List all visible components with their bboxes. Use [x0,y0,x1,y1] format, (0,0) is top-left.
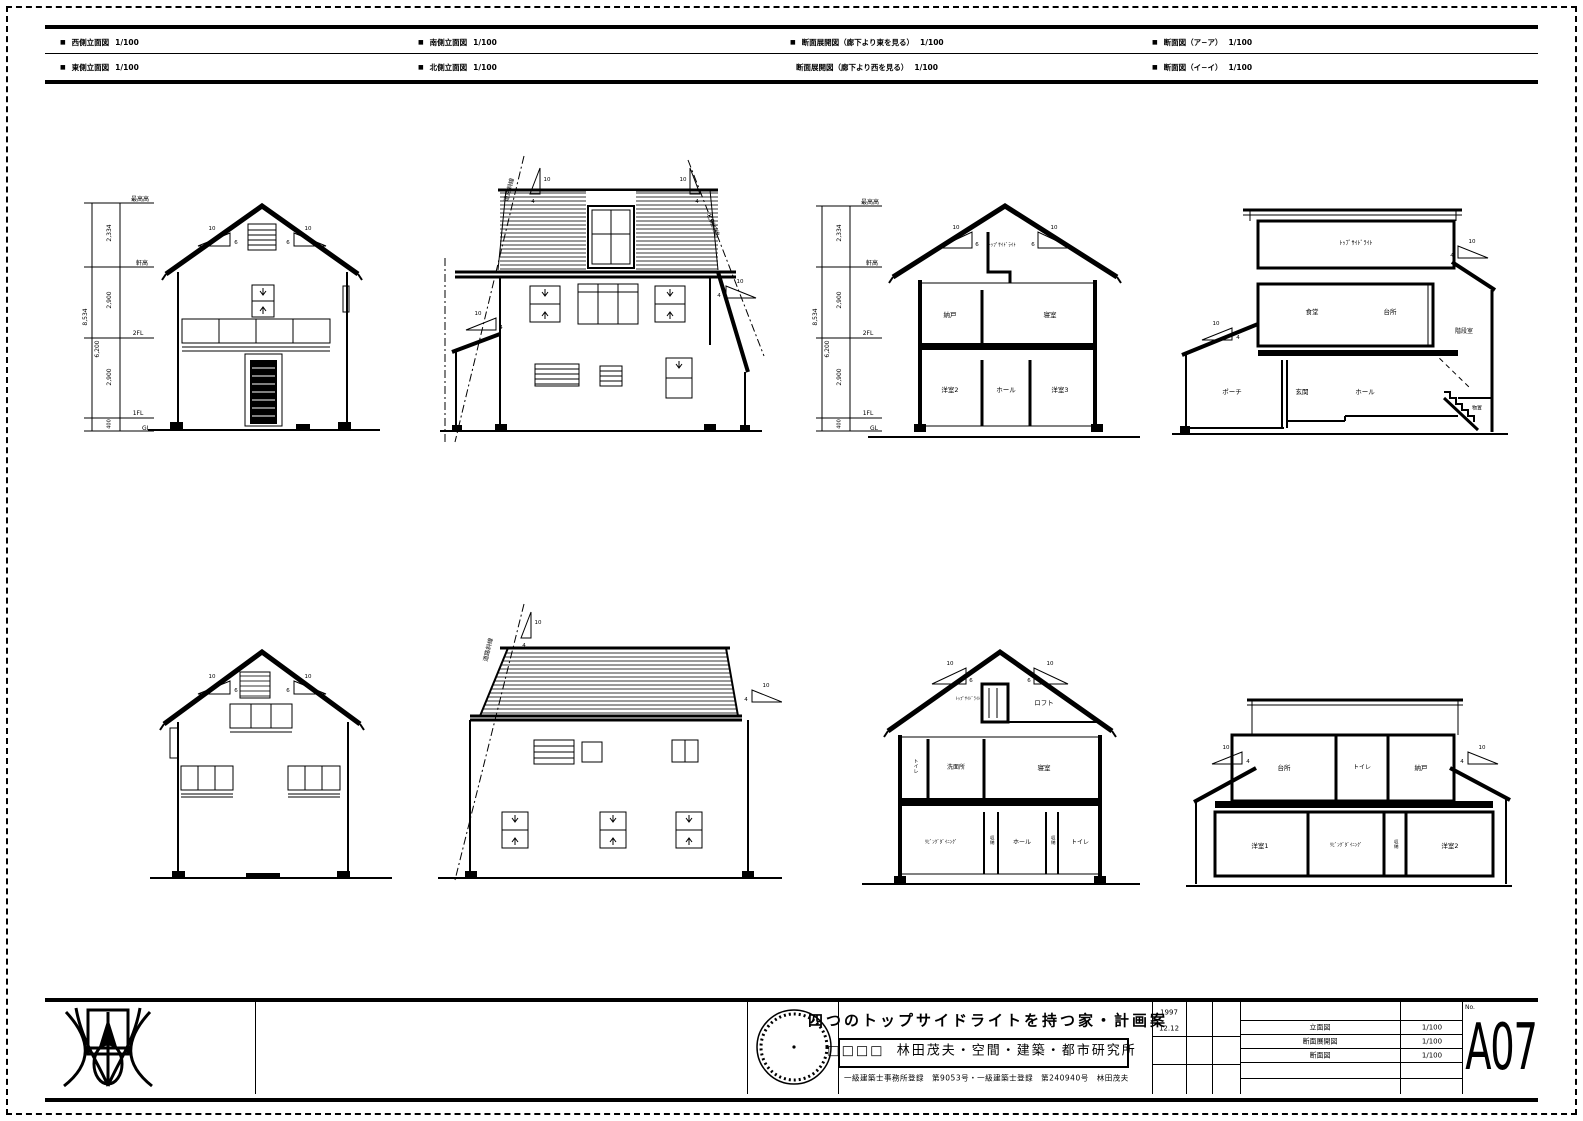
dimension-value: 400 [108,419,113,429]
drawing-scale: 1/100 [115,38,139,47]
dimension-subtotal: 6,200 [95,340,101,357]
room-label: トイレ [913,759,918,774]
slope-rise: 4 [1460,759,1464,765]
drawing-title: 断面図（ア−ア） [1164,37,1223,48]
drawing-title: 西側立面図 [72,37,110,48]
level-label: 1FL [133,411,144,417]
index-drawing-scale: 1/100 [1422,1025,1442,1032]
square-bullet-icon: ■ [418,64,424,71]
slope-run: 10 [1213,321,1220,327]
section-a-a-drawing: 10 6 10 6 [808,195,1144,445]
slope-run: 10 [475,311,482,317]
license-line: 一級建築士事務所登録 第9053号・一級建築士登録 第240940号 林田茂夫 [844,1074,1129,1082]
room-label: 洗面所 [947,765,965,771]
index-table-rule [1240,1078,1462,1079]
drawing-title: 断面展開図（廊下より東を見る） [802,37,914,48]
square-bullet-icon: ■ [60,39,66,46]
level-label: 2FL [863,331,874,337]
level-label: 最高高 [131,197,149,203]
dimension-subtotal: 6,200 [825,340,831,357]
header-cell: ■断面図（イ−イ）1/100 [1152,54,1252,80]
level-label: 1FL [863,411,874,417]
header-cell: ■東側立面図1/100 [60,54,139,80]
title-block-divider [255,998,256,1094]
room-label: 収納 [989,836,994,845]
drawing-scale: 1/100 [920,38,944,47]
header-cell: 断面展開図（廊下より西を見る）1/100 [790,54,938,80]
index-table-rule [1240,1020,1462,1021]
header-bar-row2: ■東側立面図1/100 ■北側立面図1/100 断面展開図（廊下より西を見る）1… [45,53,1538,84]
slope-run: 10 [680,177,687,183]
index-table-rule [1240,1048,1462,1049]
drawing-scale: 1/100 [115,63,139,72]
dimension-value: 2,900 [107,368,113,385]
level-label: 軒高 [866,261,878,267]
slope-run: 10 [1223,745,1230,751]
room-label: 納戸 [1415,765,1428,772]
slope-rise: 6 [234,240,238,246]
dimension-total: 8,534 [83,308,89,325]
square-bullet-icon: ■ [790,39,796,46]
slope-run: 10 [953,225,960,231]
drawing-scale: 1/100 [1228,38,1252,47]
west-elevation-drawing: 10 6 10 6 [78,148,382,440]
drawing-title: 断面展開図（廊下より西を見る） [796,62,908,73]
slope-run: 10 [1047,661,1054,667]
firm-logo-icon [58,1004,252,1090]
slope-run: 10 [535,620,542,626]
room-label: ﾘﾋﾞﾝｸﾞﾀﾞｲﾆﾝｸﾞ [1330,844,1363,849]
dimension-value: 400 [838,419,843,429]
header-cell: ■西側立面図1/100 [60,29,139,55]
slope-rise: 6 [286,688,290,694]
room-label: 階段室 [1455,329,1473,335]
title-block-divider [1186,998,1187,1094]
slope-rise: 4 [1450,253,1454,259]
level-label: GL [870,426,878,432]
index-drawing-name: 立面図 [1310,1025,1331,1032]
slope-run: 10 [209,674,216,680]
slope-run: 10 [763,683,770,689]
level-label: 2FL [133,331,144,337]
slope-rise: 4 [744,697,748,703]
level-label: 軒高 [136,261,148,267]
slope-run: 10 [305,226,312,232]
header-cell: ■南側立面図1/100 [418,29,497,55]
slope-rise: 4 [717,293,721,299]
room-label: 台所 [1384,309,1397,316]
drawing-title: 断面図（イ−イ） [1164,62,1223,73]
slope-run: 10 [209,226,216,232]
square-bullet-icon: ■ [60,64,66,71]
room-label: ﾄｯﾌﾟｻｲﾄﾞﾗｲﾄ [988,244,1016,249]
slope-rise: 6 [975,242,979,248]
firm-name: □□□□ 林田茂夫・空間・建築・都市研究所 [827,1045,1136,1058]
index-drawing-name: 断面図 [1310,1053,1331,1060]
date-month-day: 12.12 [1159,1026,1179,1033]
drawing-title: 北側立面図 [430,62,468,73]
room-label: 寝室 [1038,765,1051,772]
room-label: 寝室 [1044,312,1057,319]
slope-run: 10 [544,177,551,183]
slope-run: 10 [305,674,312,680]
room-label: トイレ [1071,840,1089,846]
title-block-rule [1152,1036,1240,1037]
index-drawing-scale: 1/100 [1422,1053,1442,1060]
slope-rise: 6 [234,688,238,694]
drawing-title: 南側立面図 [430,37,468,48]
level-label: 最高高 [861,200,879,206]
slope-run: 10 [947,661,954,667]
firm-title: 林田茂夫・空間・建築・都市研究所 [897,1044,1137,1059]
drawing-scale: 1/100 [914,63,938,72]
sheet-number-cell: No. A07 [1463,1002,1538,1090]
room-label: 納戸 [944,312,957,319]
north-elevation-drawing: 10 4 10 4 [430,598,782,894]
room-label: ホール [996,387,1016,394]
drawing-sheet: ■西側立面図1/100 ■南側立面図1/100 ■断面展開図（廊下より東を見る）… [0,0,1583,1121]
index-drawing-name: 断面展開図 [1303,1039,1338,1046]
section-i-i-drawing: 10 6 10 6 [858,640,1142,896]
dimension-value: 2,900 [107,291,113,308]
slope-rise: 4 [531,199,535,205]
drawing-scale: 1/100 [473,38,497,47]
room-label: 洋室3 [1051,387,1068,394]
slope-run: 10 [1479,745,1486,751]
title-block-divider [1240,998,1241,1094]
drawing-title: 東側立面図 [72,62,110,73]
room-label: 台所 [1278,765,1291,772]
slope-rise: 4 [1246,759,1250,765]
slope-rise: 6 [286,240,290,246]
title-block-rule [1152,1064,1240,1065]
square-bullet-icon: ■ [418,39,424,46]
slope-rise: 6 [1031,242,1035,248]
index-table-rule [1240,1062,1462,1063]
room-label: ホール [1355,389,1375,396]
room-label: 玄関 [1296,389,1309,396]
room-label: 収納 [1050,836,1055,845]
date-year: 1997 [1160,1010,1178,1017]
slope-rise: 6 [969,678,973,684]
index-table-rule [1240,1034,1462,1035]
room-label: ロフト [1034,700,1054,707]
square-bullet-icon: ■ [1152,64,1158,71]
header-cell: ■断面展開図（廊下より東を見る）1/100 [790,29,944,55]
dimension-value: 2,334 [837,224,843,241]
south-elevation-drawing: 10 4 10 4 10 4 10 4 [430,148,780,444]
header-cell: ■断面図（ア−ア）1/100 [1152,29,1252,55]
sheet-number: A07 [1465,1011,1537,1085]
slope-run: 10 [1051,225,1058,231]
slope-run: 10 [737,279,744,285]
section-development-east-drawing: 10 4 10 4 [1160,195,1510,445]
drawing-scale: 1/100 [1228,63,1252,72]
room-label: 洋室2 [941,387,958,394]
slope-rise: 4 [499,325,503,331]
dimension-value: 2,334 [107,224,113,241]
section-development-west-drawing: 10 4 10 4 [1180,678,1512,896]
slope-rise: 4 [522,643,526,649]
room-label: ﾄｯﾌﾟｻｲﾄﾞﾗｲﾄ [1339,241,1372,247]
slope-rise: 6 [1027,678,1031,684]
slope-run: 10 [1469,239,1476,245]
room-label: ﾄｯﾌﾟｻｲﾄﾞﾗｲﾄ [956,698,981,703]
header-bar-row1: ■西側立面図1/100 ■南側立面図1/100 ■断面展開図（廊下より東を見る）… [45,25,1538,56]
dimension-value: 2,900 [837,368,843,385]
room-label: 収納 [1393,840,1398,849]
dimension-total: 8,534 [813,308,819,325]
slope-rise: 4 [1236,335,1240,341]
header-cell: ■北側立面図1/100 [418,54,497,80]
firm-prefix: □□□□ [827,1044,884,1059]
room-label: ホール [1013,840,1031,846]
room-label: 洋室1 [1251,843,1268,850]
east-elevation-drawing: 10 6 10 6 [148,600,394,892]
square-bullet-icon: ■ [1152,39,1158,46]
room-label: トイレ [1353,765,1371,771]
drawing-scale: 1/100 [473,63,497,72]
project-title: 四つのトップサイドライトを持つ家・計画案 [808,1014,1168,1029]
room-label: 食堂 [1306,309,1319,316]
title-block-divider [1400,998,1401,1094]
room-label: ポーチ [1222,389,1242,396]
room-label: 洋室2 [1441,843,1458,850]
slope-rise: 4 [695,199,699,205]
title-block-divider [1212,998,1213,1094]
room-label: ﾘﾋﾞﾝｸﾞﾀﾞｲﾆﾝｸﾞ [925,841,958,846]
level-label: GL [142,426,150,432]
title-block-divider [747,998,748,1094]
room-label: 物置 [1472,407,1482,412]
index-drawing-scale: 1/100 [1422,1039,1442,1046]
dimension-value: 2,900 [837,291,843,308]
